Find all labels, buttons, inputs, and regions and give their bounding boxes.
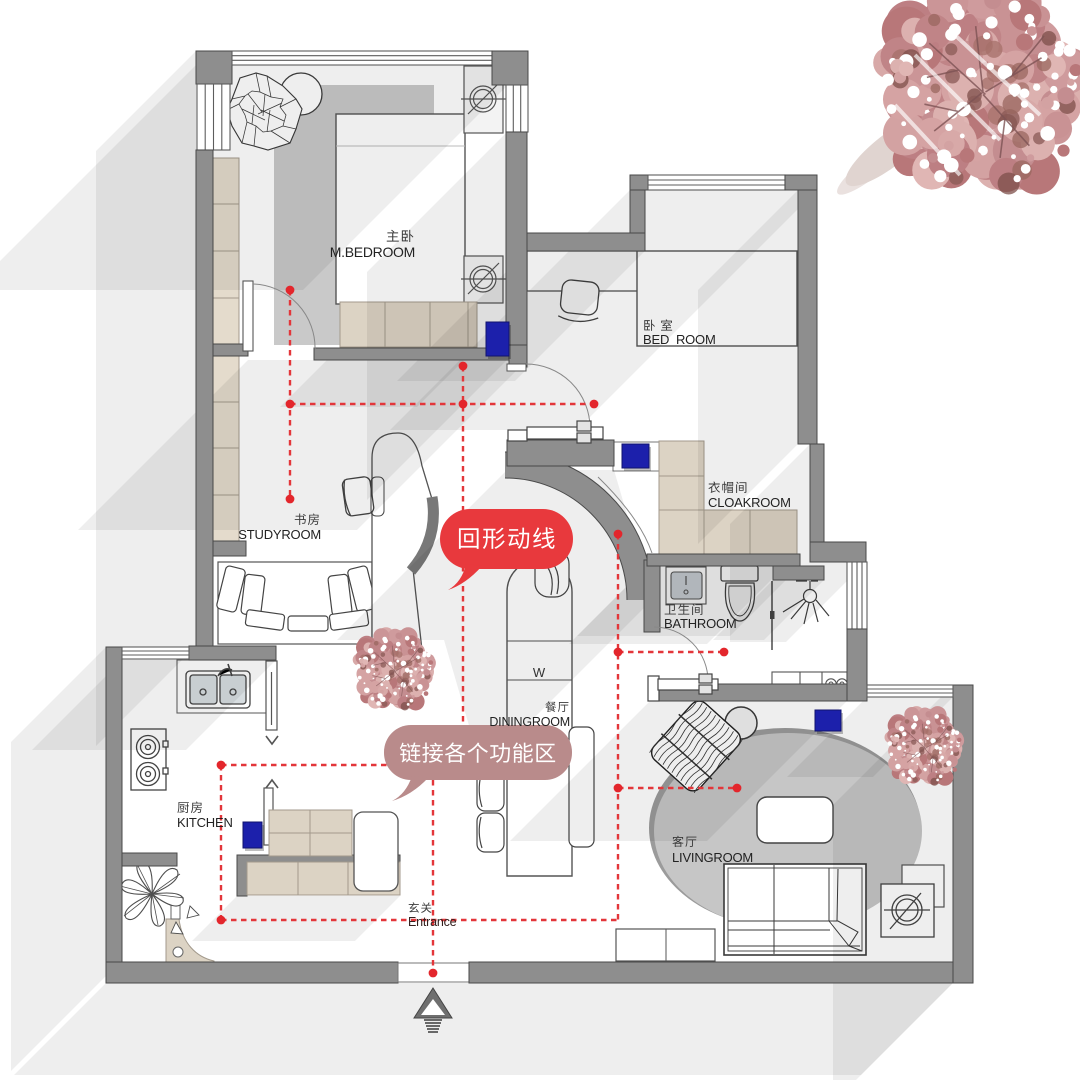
svg-text:BED ROOM: BED ROOM [643, 332, 716, 347]
svg-text:DININGROOM: DININGROOM [489, 715, 570, 729]
svg-text:M.BEDROOM: M.BEDROOM [330, 244, 415, 260]
svg-text:KITCHEN: KITCHEN [177, 815, 233, 830]
svg-text:CLOAKROOM: CLOAKROOM [708, 495, 791, 510]
svg-text:BATHROOM: BATHROOM [664, 616, 737, 631]
svg-text:LIVINGROOM: LIVINGROOM [672, 850, 753, 865]
svg-text:Entrance: Entrance [408, 915, 457, 929]
svg-text:STUDYROOM: STUDYROOM [238, 527, 321, 542]
svg-text:W: W [533, 665, 546, 680]
